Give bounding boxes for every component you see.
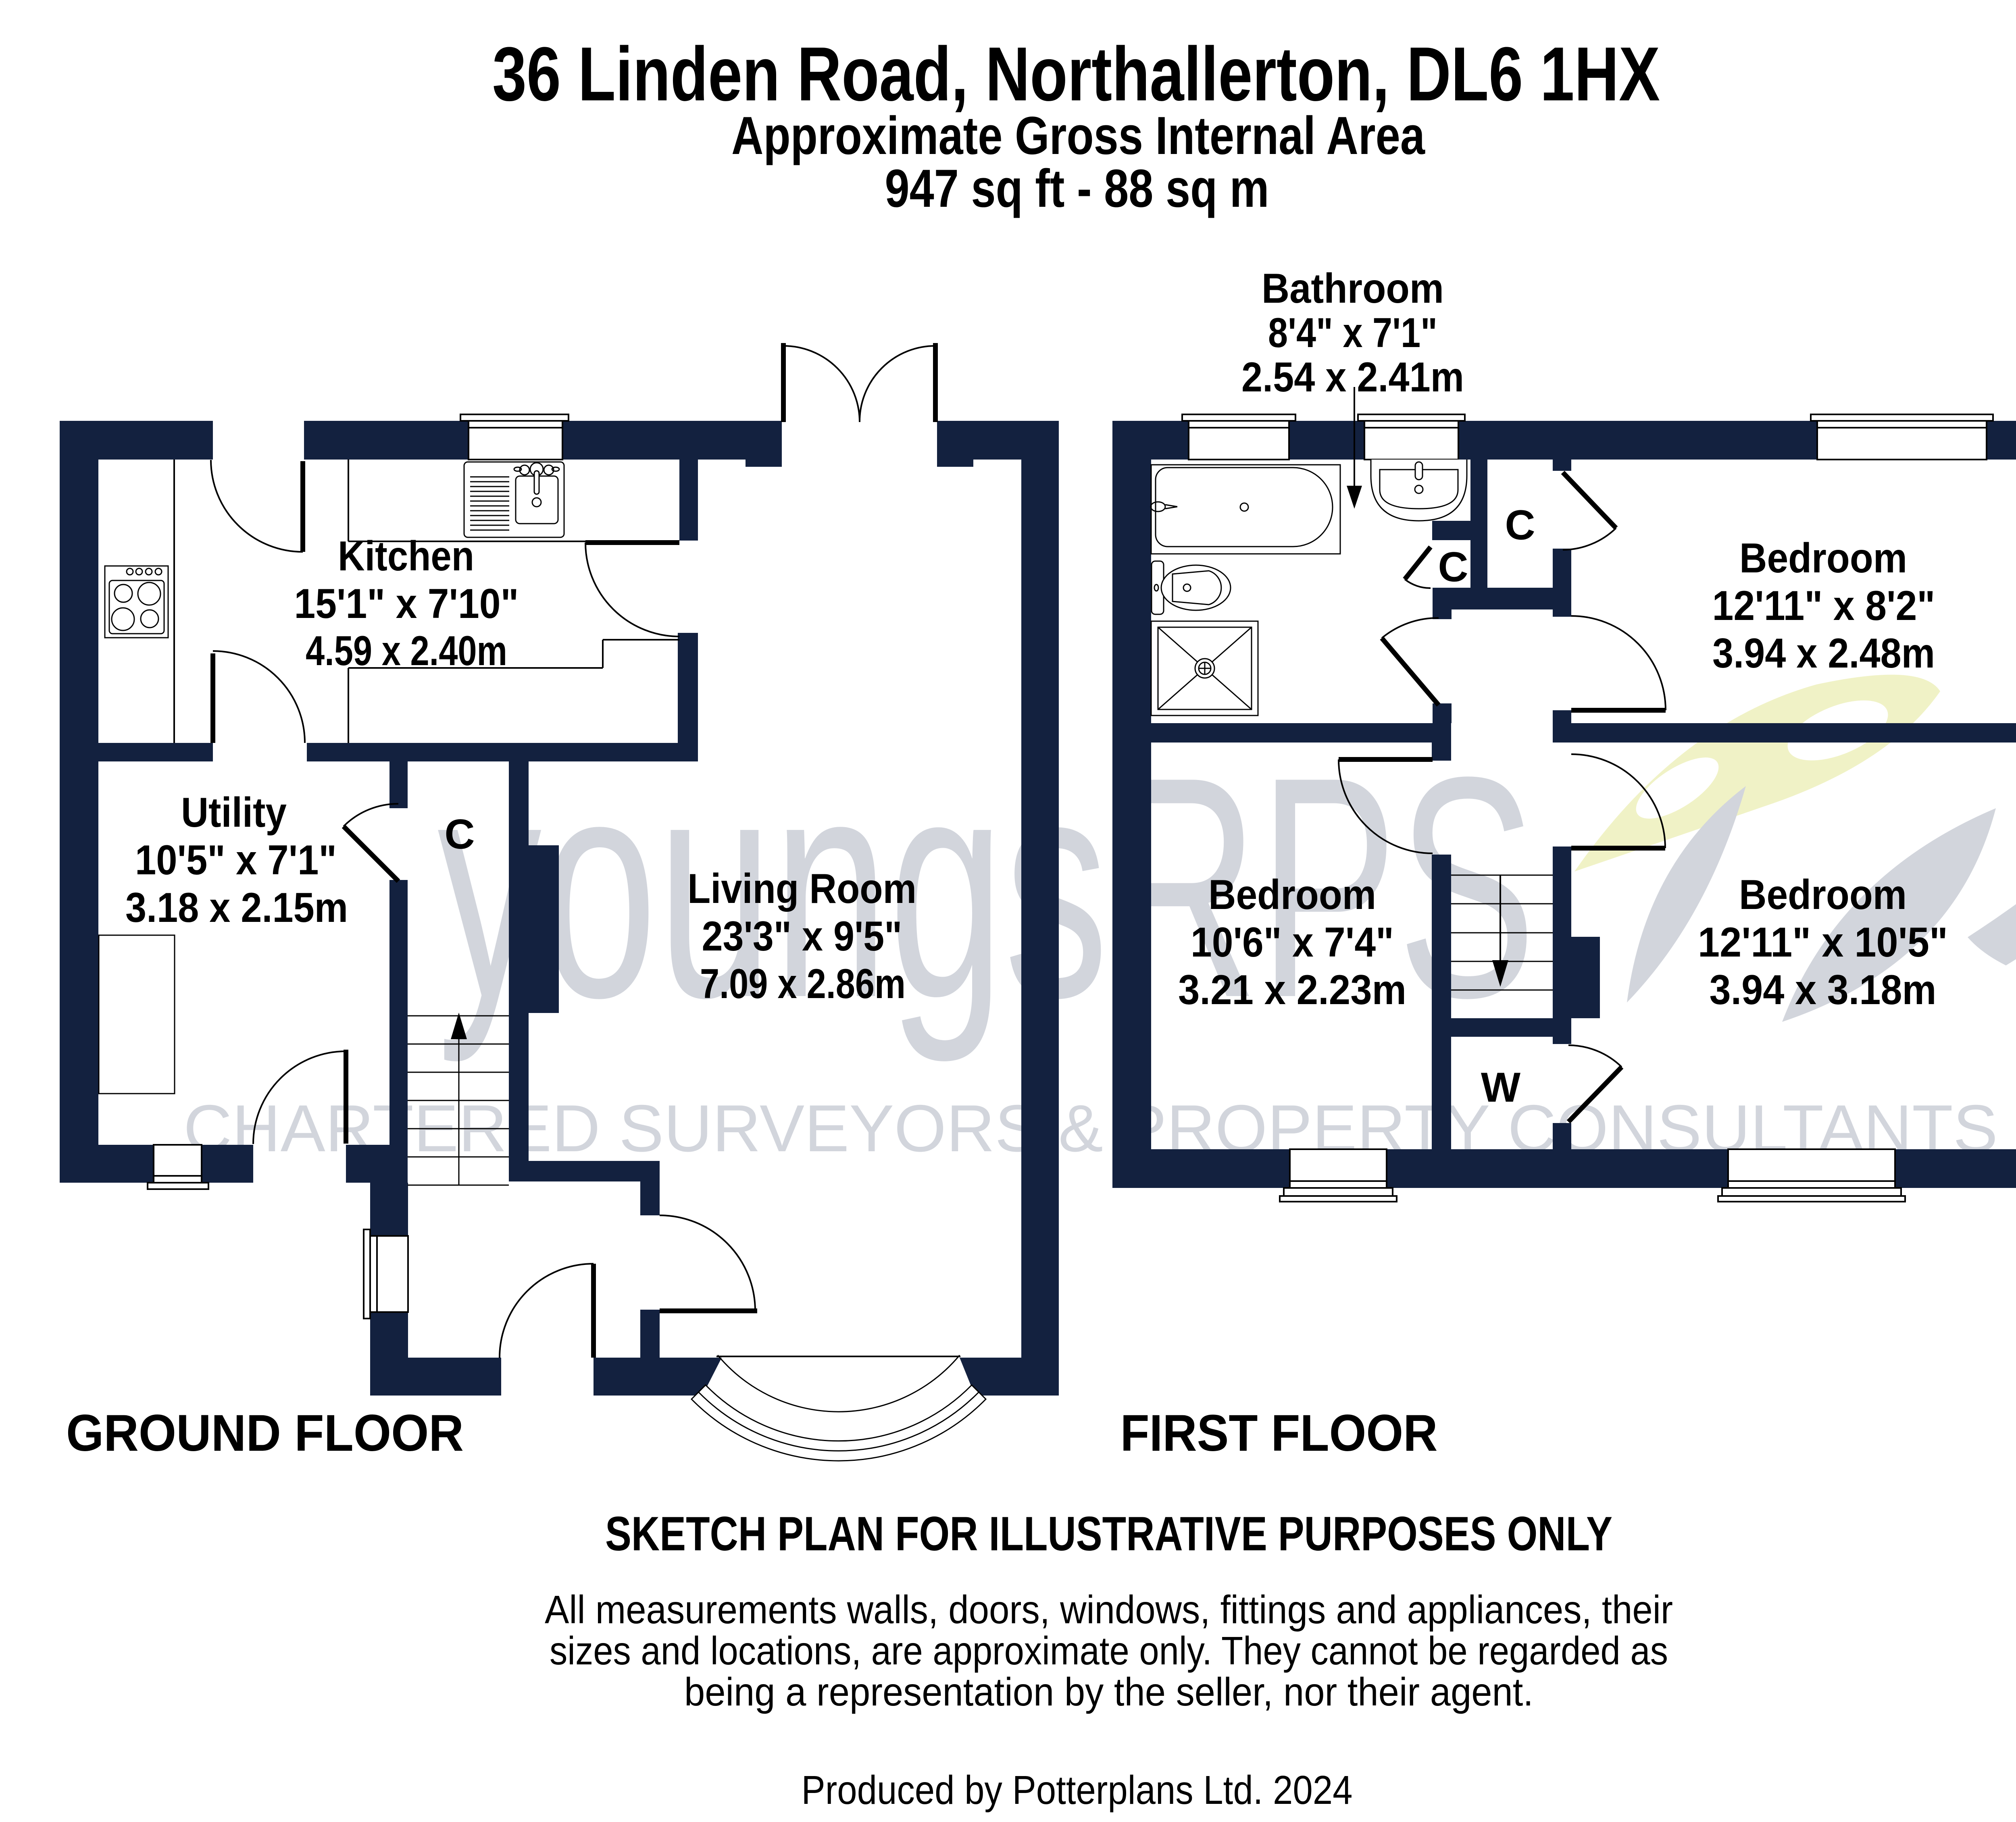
svg-text:12'11" x 8'2": 12'11" x 8'2" (1712, 582, 1935, 629)
svg-text:All measurements walls, doors,: All measurements walls, doors, windows, … (545, 1587, 1673, 1632)
svg-text:15'1" x 7'10": 15'1" x 7'10" (294, 580, 519, 627)
svg-text:C: C (444, 811, 475, 858)
svg-text:3.21 x 2.23m: 3.21 x 2.23m (1178, 967, 1406, 1013)
svg-text:SKETCH PLAN FOR ILLUSTRATIVE P: SKETCH PLAN FOR ILLUSTRATIVE PURPOSES ON… (605, 1507, 1612, 1561)
svg-text:Bedroom: Bedroom (1739, 871, 1907, 918)
svg-text:Produced by Potterplans Ltd. 2: Produced by Potterplans Ltd. 2024 (802, 1768, 1353, 1813)
svg-text:GROUND FLOOR: GROUND FLOOR (66, 1404, 464, 1462)
svg-text:4.59 x 2.40m: 4.59 x 2.40m (306, 628, 507, 674)
svg-text:Bedroom: Bedroom (1739, 535, 1907, 582)
svg-text:3.94 x 3.18m: 3.94 x 3.18m (1710, 967, 1937, 1013)
svg-text:947 sq ft - 88 sq m: 947 sq ft - 88 sq m (885, 159, 1269, 218)
svg-text:3.94 x 2.48m: 3.94 x 2.48m (1712, 630, 1935, 677)
svg-text:Bedroom: Bedroom (1208, 871, 1376, 918)
svg-text:Bathroom: Bathroom (1262, 265, 1444, 312)
svg-text:Utility: Utility (181, 789, 287, 836)
svg-text:7.09 x 2.86m: 7.09 x 2.86m (700, 961, 906, 1007)
svg-text:Living Room: Living Room (687, 865, 916, 912)
svg-text:10'6" x 7'4": 10'6" x 7'4" (1191, 919, 1394, 966)
svg-text:being a representation by the: being a representation by the seller, no… (684, 1670, 1533, 1714)
svg-text:10'5" x 7'1": 10'5" x 7'1" (135, 837, 337, 884)
svg-text:sizes and locations, are appro: sizes and locations, are approximate onl… (550, 1629, 1668, 1673)
svg-text:8'4" x 7'1": 8'4" x 7'1" (1268, 310, 1437, 356)
svg-text:Approximate Gross Internal Are: Approximate Gross Internal Area (731, 106, 1425, 166)
svg-text:36 Linden Road, Northallerton,: 36 Linden Road, Northallerton, DL6 1HX (492, 31, 1660, 117)
svg-text:23'3" x 9'5": 23'3" x 9'5" (702, 913, 902, 960)
svg-text:Kitchen: Kitchen (338, 533, 474, 580)
svg-text:3.18 x 2.15m: 3.18 x 2.15m (125, 884, 348, 931)
svg-text:FIRST FLOOR: FIRST FLOOR (1120, 1404, 1438, 1462)
svg-text:W: W (1481, 1064, 1521, 1111)
svg-text:12'11" x 10'5": 12'11" x 10'5" (1698, 919, 1948, 966)
svg-text:C: C (1438, 544, 1468, 591)
svg-text:2.54 x 2.41m: 2.54 x 2.41m (1241, 354, 1464, 401)
svg-text:C: C (1505, 502, 1535, 549)
